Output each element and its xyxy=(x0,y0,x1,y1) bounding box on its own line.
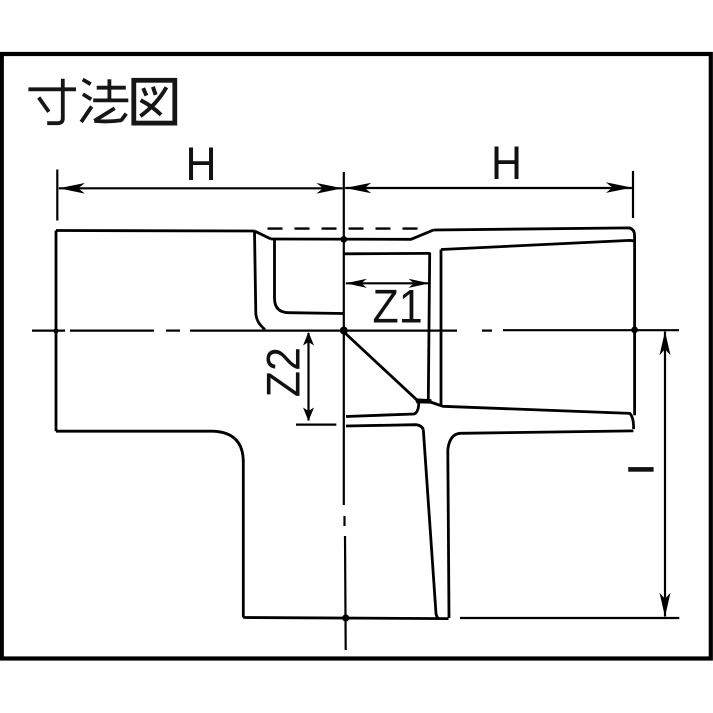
svg-text:H: H xyxy=(491,136,522,189)
svg-text:Z1: Z1 xyxy=(373,280,423,333)
svg-text:Z2: Z2 xyxy=(257,347,310,397)
svg-text:H: H xyxy=(185,137,216,190)
